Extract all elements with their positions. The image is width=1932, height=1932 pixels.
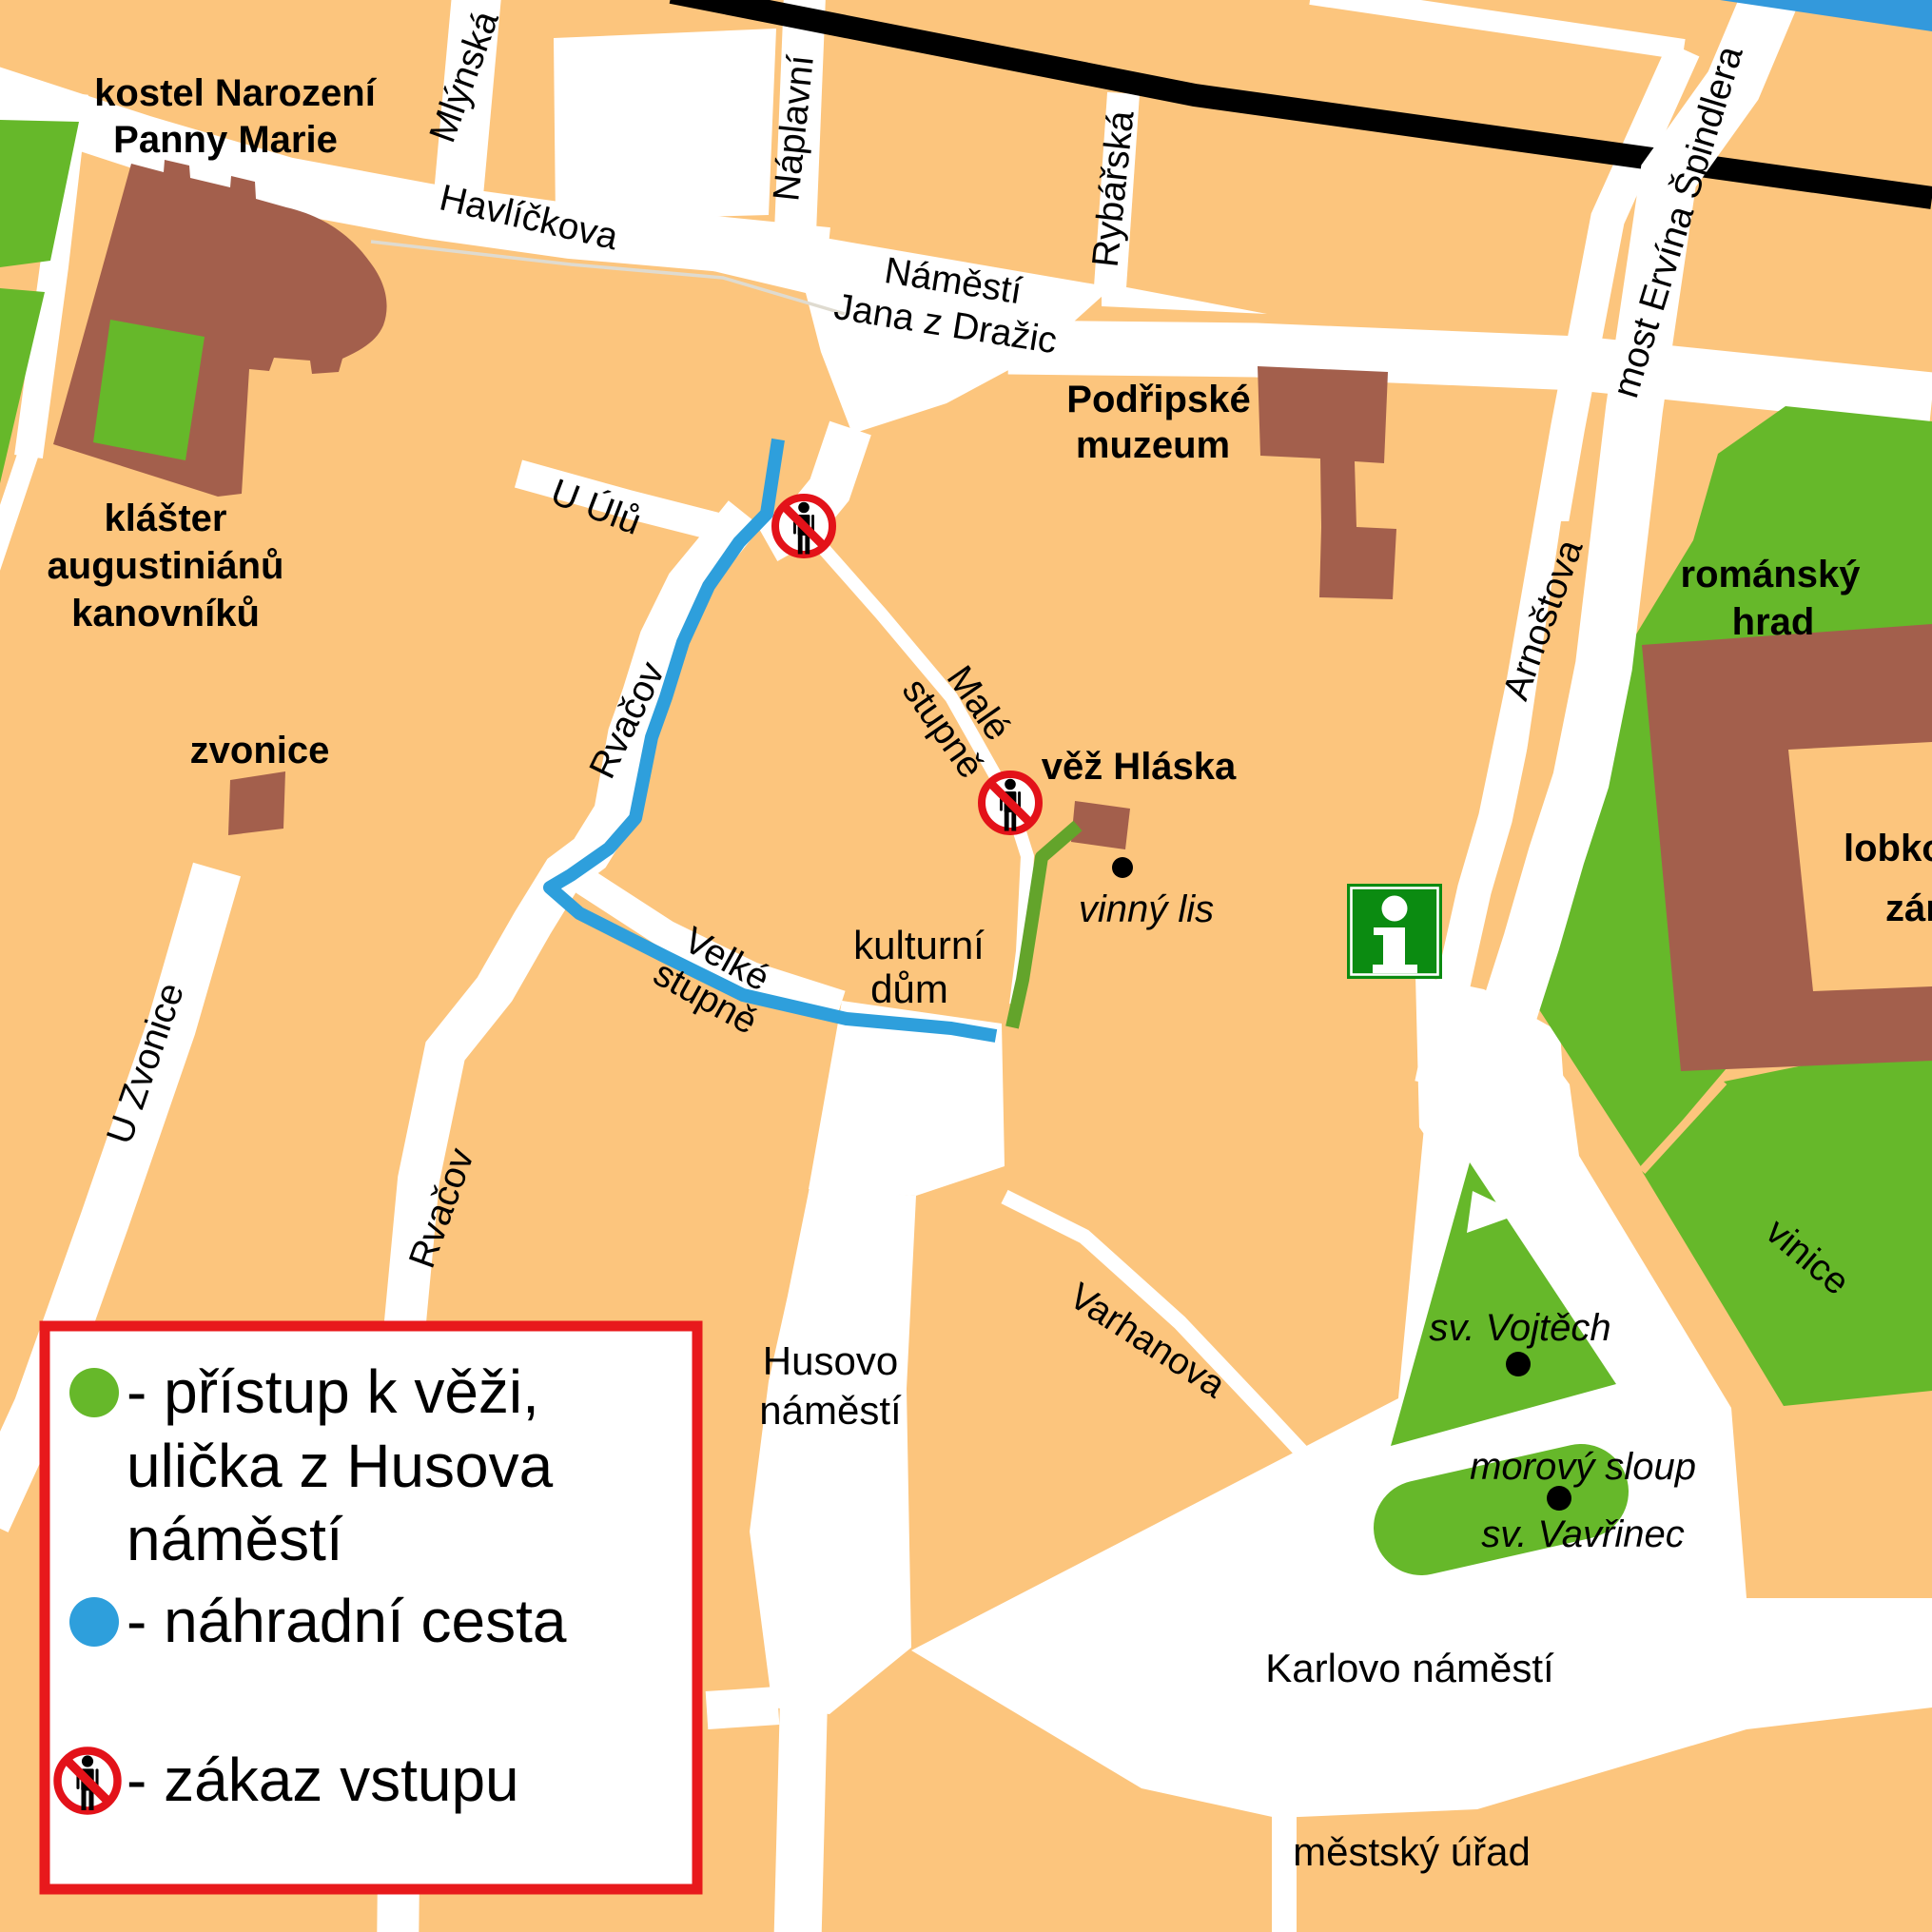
svg-text:Podřipské: Podřipské xyxy=(1066,379,1250,420)
svg-text:Karlovo náměstí: Karlovo náměstí xyxy=(1265,1646,1554,1690)
svg-text:- zákaz vstupu: - zákaz vstupu xyxy=(127,1746,519,1814)
svg-text:klášter: klášter xyxy=(105,498,227,539)
svg-text:augustiniánů: augustiniánů xyxy=(48,545,284,587)
svg-text:lobkovický: lobkovický xyxy=(1844,828,1932,869)
svg-text:kulturní: kulturní xyxy=(853,923,985,967)
svg-text:- náhradní cesta: - náhradní cesta xyxy=(127,1587,567,1655)
svg-text:hrad: hrad xyxy=(1732,601,1815,643)
svg-text:sv. Vavřinec: sv. Vavřinec xyxy=(1481,1513,1684,1555)
svg-text:muzeum: muzeum xyxy=(1076,424,1230,466)
svg-text:ulička z Husova: ulička z Husova xyxy=(127,1432,554,1500)
svg-text:morový sloup: morový sloup xyxy=(1470,1446,1696,1488)
svg-text:románský: románský xyxy=(1681,554,1862,595)
svg-text:sv. Vojtěch: sv. Vojtěch xyxy=(1429,1307,1610,1349)
svg-text:zámek: zámek xyxy=(1885,888,1932,929)
svg-text:kanovníků: kanovníků xyxy=(71,593,260,634)
svg-text:Husovo: Husovo xyxy=(763,1338,898,1383)
svg-text:náměstí: náměstí xyxy=(127,1505,343,1573)
svg-text:vinný lis: vinný lis xyxy=(1079,888,1214,930)
svg-text:dům: dům xyxy=(870,966,948,1011)
svg-text:kostel Narození: kostel Narození xyxy=(94,72,378,114)
svg-text:zvonice: zvonice xyxy=(190,730,330,771)
svg-text:náměstí: náměstí xyxy=(759,1388,902,1433)
svg-text:Panny Marie: Panny Marie xyxy=(113,119,338,161)
svg-text:městský úřad: městský úřad xyxy=(1293,1829,1531,1874)
svg-text:věž Hláska: věž Hláska xyxy=(1042,746,1237,788)
svg-text:- přístup k věži,: - přístup k věži, xyxy=(127,1357,539,1426)
